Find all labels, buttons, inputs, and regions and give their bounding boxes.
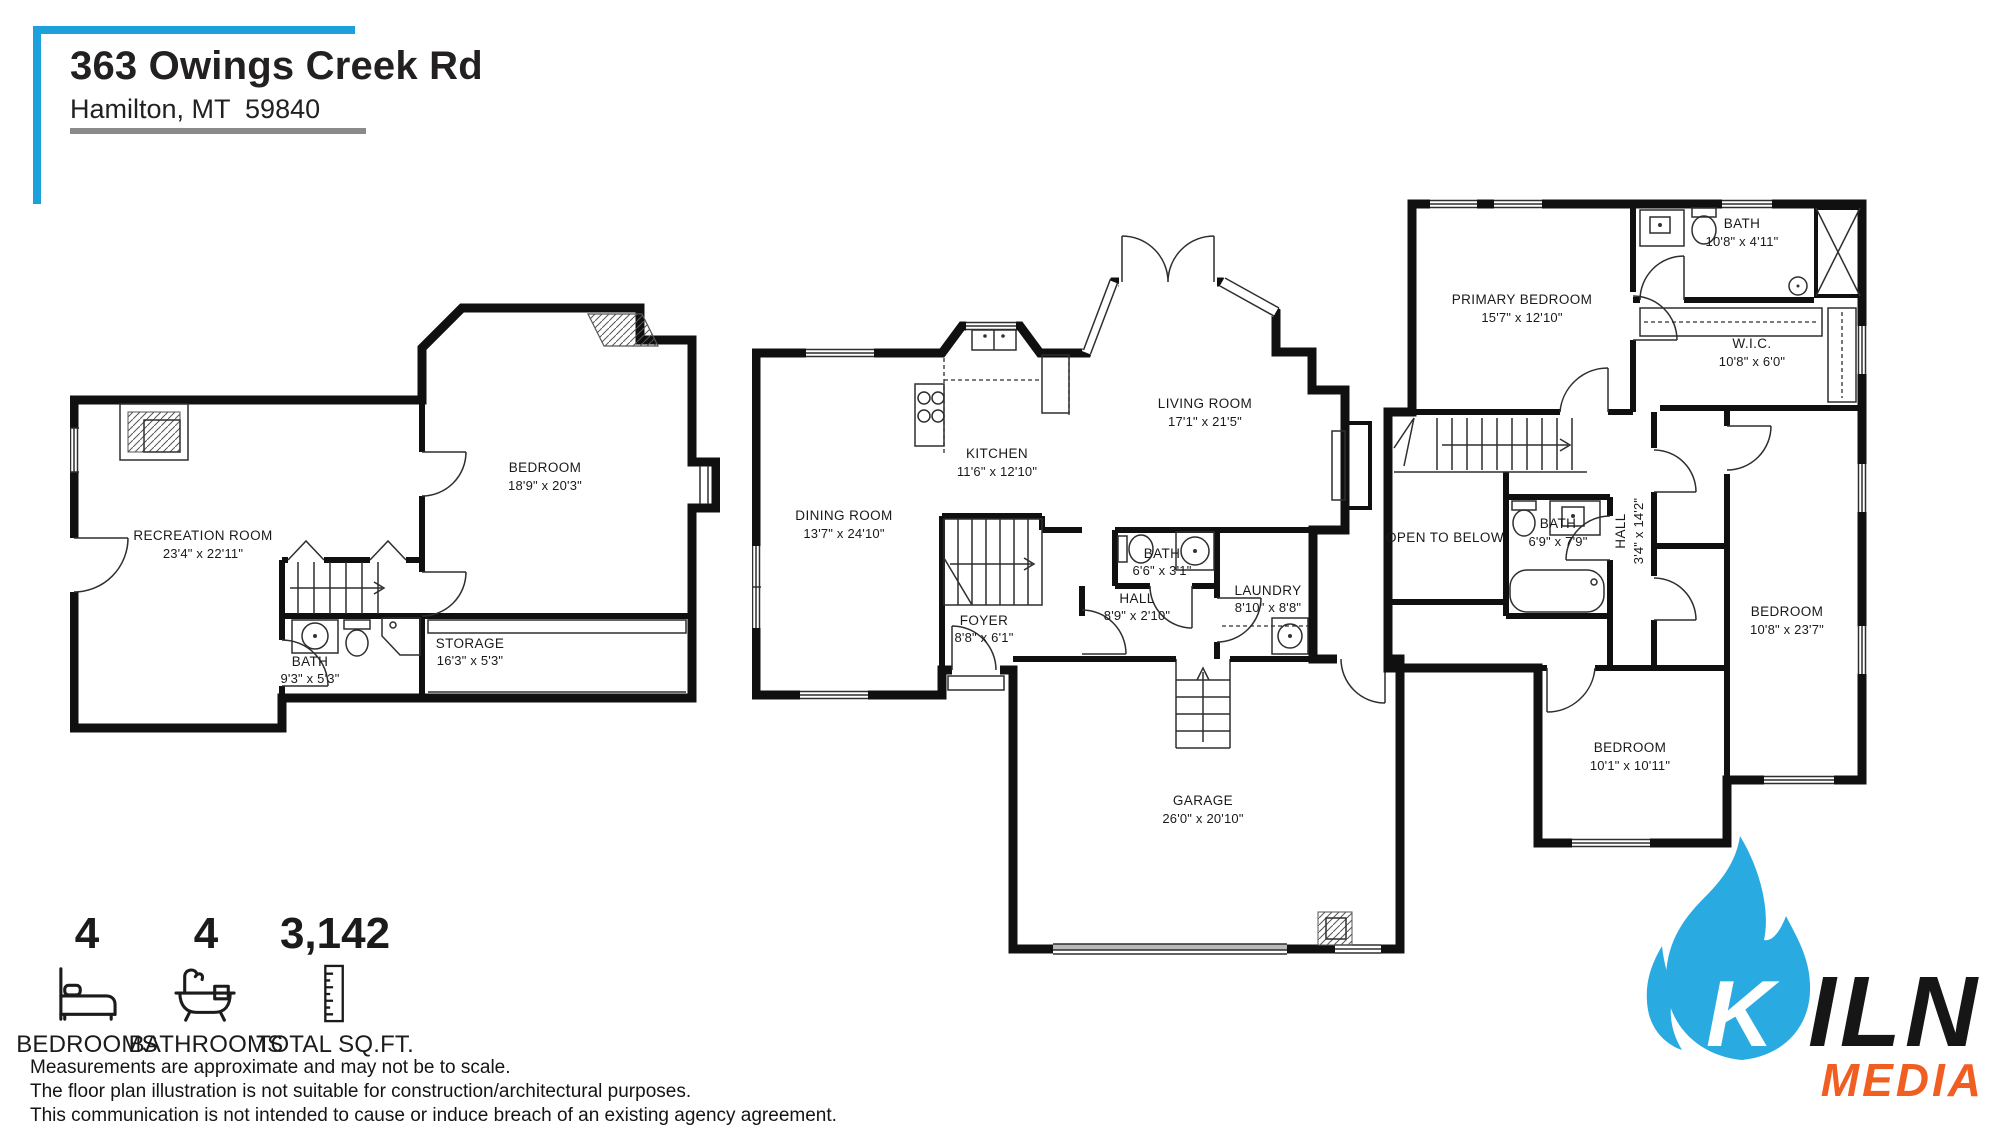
room-label: STORAGE [436,636,505,651]
stairs-icon [1394,418,1587,472]
room-label: BEDROOM [1594,740,1667,755]
room-label: BATH [1144,546,1181,561]
window-icon [800,690,868,700]
garage-door-icon [1053,942,1287,956]
room-dims: 13'7" x 24'10" [803,526,885,541]
room-label: BATH [1540,516,1577,531]
room-dims: 26'0" x 20'10" [1162,811,1244,826]
room-label: HALL [1119,591,1154,606]
logo-letters-iln: ILN [1808,956,1981,1068]
room-dims: 8'10" x 8'8" [1235,600,1302,615]
main-level-floorplan: DINING ROOM 13'7" x 24'10" KITCHEN 11'6"… [752,218,1407,993]
window-icon [70,428,80,472]
room-dims: 3'4" x 14'2" [1631,498,1646,565]
stairs-icon [1176,653,1230,748]
sqft-count: 3,142 [280,912,390,956]
stat-bedrooms: 4 BEDROOMS [32,912,142,1059]
door-icon [422,572,466,616]
room-dims: 10'8" x 6'0" [1719,354,1786,369]
room-bedroom-right: BEDROOM 10'8" x 23'7" [1750,604,1824,637]
lower-outer-walls [74,308,716,728]
door-icon [1654,450,1696,620]
window-icon [1219,277,1279,317]
open-to-below-label: OPEN TO BELOW [1386,530,1504,545]
bathtub-icon [169,964,243,1024]
room-dims: 18'9" x 20'3" [508,478,582,493]
room-living: LIVING ROOM 17'1" x 21'5" [1158,396,1252,429]
mechanical-unit-icon [120,404,188,460]
room-dims: 10'1" x 10'11" [1590,758,1671,773]
toilet-icon [1512,501,1536,536]
ruler-icon [322,964,348,1024]
room-bath-lower: BATH 9'3" x 5'3" [280,654,339,686]
room-label: FOYER [960,613,1009,628]
window-icon [752,546,761,628]
room-dims: 17'1" x 21'5" [1168,414,1242,429]
room-dims: 10'8" x 4'11" [1706,234,1779,249]
sink-icon [292,620,338,653]
room-recreation: RECREATION ROOM 23'4" x 22'11" [133,528,272,561]
stove-icon [915,355,1069,454]
room-dims: 8'9" x 2'10" [1104,608,1171,623]
room-bedroom-lower: BEDROOM 18'9" x 20'3" [508,460,582,493]
room-label: RECREATION ROOM [133,528,272,543]
room-bedroom-left: BEDROOM 10'1" x 10'11" [1590,740,1671,773]
room-label: BATH [1724,216,1761,231]
toilet-icon [344,620,370,656]
washer-icon [1222,618,1308,654]
logo-letter-k: K [1706,961,1780,1066]
lower-level-floorplan: RECREATION ROOM 23'4" x 22'11" BEDROOM 1… [70,300,720,745]
room-label: BEDROOM [509,460,582,475]
accent-bar-top [33,26,355,34]
stairs-icon [944,519,1042,605]
door-icon [422,452,466,496]
room-dims: 15'7" x 12'10" [1481,310,1563,325]
room-label: BEDROOM [1751,604,1824,619]
stat-bathrooms: 4 BATHROOMS [148,912,264,1059]
mechanical-unit-icon [1318,912,1352,945]
room-dims: 11'6" x 12'10" [957,464,1038,479]
window-icon [1082,279,1119,355]
window-icon [700,466,708,504]
french-doors-icon [1119,236,1217,288]
bed-icon [51,964,123,1024]
vanity-icon [1640,210,1684,246]
room-foyer: FOYER 8'8" x 6'1" [954,613,1013,645]
room-label: LIVING ROOM [1158,396,1252,411]
disclaimer-text: Measurements are approximate and may not… [30,1056,837,1128]
window-icon [806,348,874,358]
sqft-label: TOTAL SQ.FT. [256,1031,414,1059]
room-label: BATH [292,654,329,669]
door-icon [1727,426,1771,470]
room-dims: 6'6" x 3'1" [1132,563,1191,578]
upper-level-floorplan: PRIMARY BEDROOM 15'7" x 12'10" BATH 10'8… [1382,196,1877,886]
room-bath-mid: BATH 6'9" x 7'9" [1528,516,1587,549]
door-icon [1547,668,1595,712]
room-dims: 9'3" x 5'3" [280,671,339,686]
kitchen-sink-icon [972,330,1016,350]
stairs-icon [290,562,384,614]
room-storage: STORAGE 16'3" x 5'3" [436,636,505,668]
bathtub-fixture-icon [1510,570,1604,612]
room-hall-main: HALL 8'9" x 2'10" [1104,591,1171,623]
shower-icon [382,618,420,655]
floorplan-sheet: 363 Owings Creek Rd Hamilton, MT 59840 [0,0,2009,1130]
property-city-state-zip: Hamilton, MT 59840 [70,94,320,125]
bedrooms-count: 4 [75,912,99,956]
stat-sqft: 3,142 TOTAL SQ.FT. [278,912,392,1059]
room-garage: GARAGE 26'0" x 20'10" [1162,793,1244,826]
door-icon [70,538,128,592]
room-laundry: LAUNDRY 8'10" x 8'8" [1234,583,1301,615]
disclaimer-line-1: Measurements are approximate and may not… [30,1056,837,1080]
bathrooms-count: 4 [194,912,218,956]
room-label: LAUNDRY [1234,583,1301,598]
room-label: DINING ROOM [795,508,892,523]
room-dims: 8'8" x 6'1" [954,630,1013,645]
door-icon [1337,653,1385,703]
disclaimer-line-2: The floor plan illustration is not suita… [30,1080,837,1104]
room-hall-upper: HALL 3'4" x 14'2" [1613,498,1646,565]
property-address: 363 Owings Creek Rd [70,44,483,89]
sink-icon [1789,277,1807,295]
logo-media-text: MEDIA [1821,1054,1984,1106]
room-dims: 6'9" x 7'9" [1528,534,1587,549]
room-wic: W.I.C. 10'8" x 6'0" [1719,336,1786,369]
door-icon [1560,368,1608,412]
main-interior-walls [942,516,1400,670]
hatched-closet-icon [588,314,658,346]
room-dining: DINING ROOM 13'7" x 24'10" [795,508,892,541]
fireplace-icon [1332,423,1370,508]
room-primary-bedroom: PRIMARY BEDROOM 15'7" x 12'10" [1452,292,1593,325]
accent-bar-side [33,26,41,204]
room-label: KITCHEN [966,446,1028,461]
main-outer-walls [756,282,1400,949]
room-dims: 23'4" x 22'11" [163,546,244,561]
room-kitchen: KITCHEN 11'6" x 12'10" [957,446,1038,479]
room-label: HALL [1613,513,1628,548]
room-label: GARAGE [1173,793,1233,808]
door-icon [1640,256,1684,300]
disclaimer-line-3: This communication is not intended to ca… [30,1104,837,1128]
header-underline [70,128,366,134]
kiln-media-logo: K ILN MEDIA [1640,828,2009,1128]
room-label: W.I.C. [1732,336,1771,351]
room-dims: 10'8" x 23'7" [1750,622,1824,637]
room-label: PRIMARY BEDROOM [1452,292,1593,307]
room-dims: 16'3" x 5'3" [437,653,504,668]
room-bath-main: BATH 6'6" x 3'1" [1132,546,1191,578]
shower-icon [1816,208,1860,296]
